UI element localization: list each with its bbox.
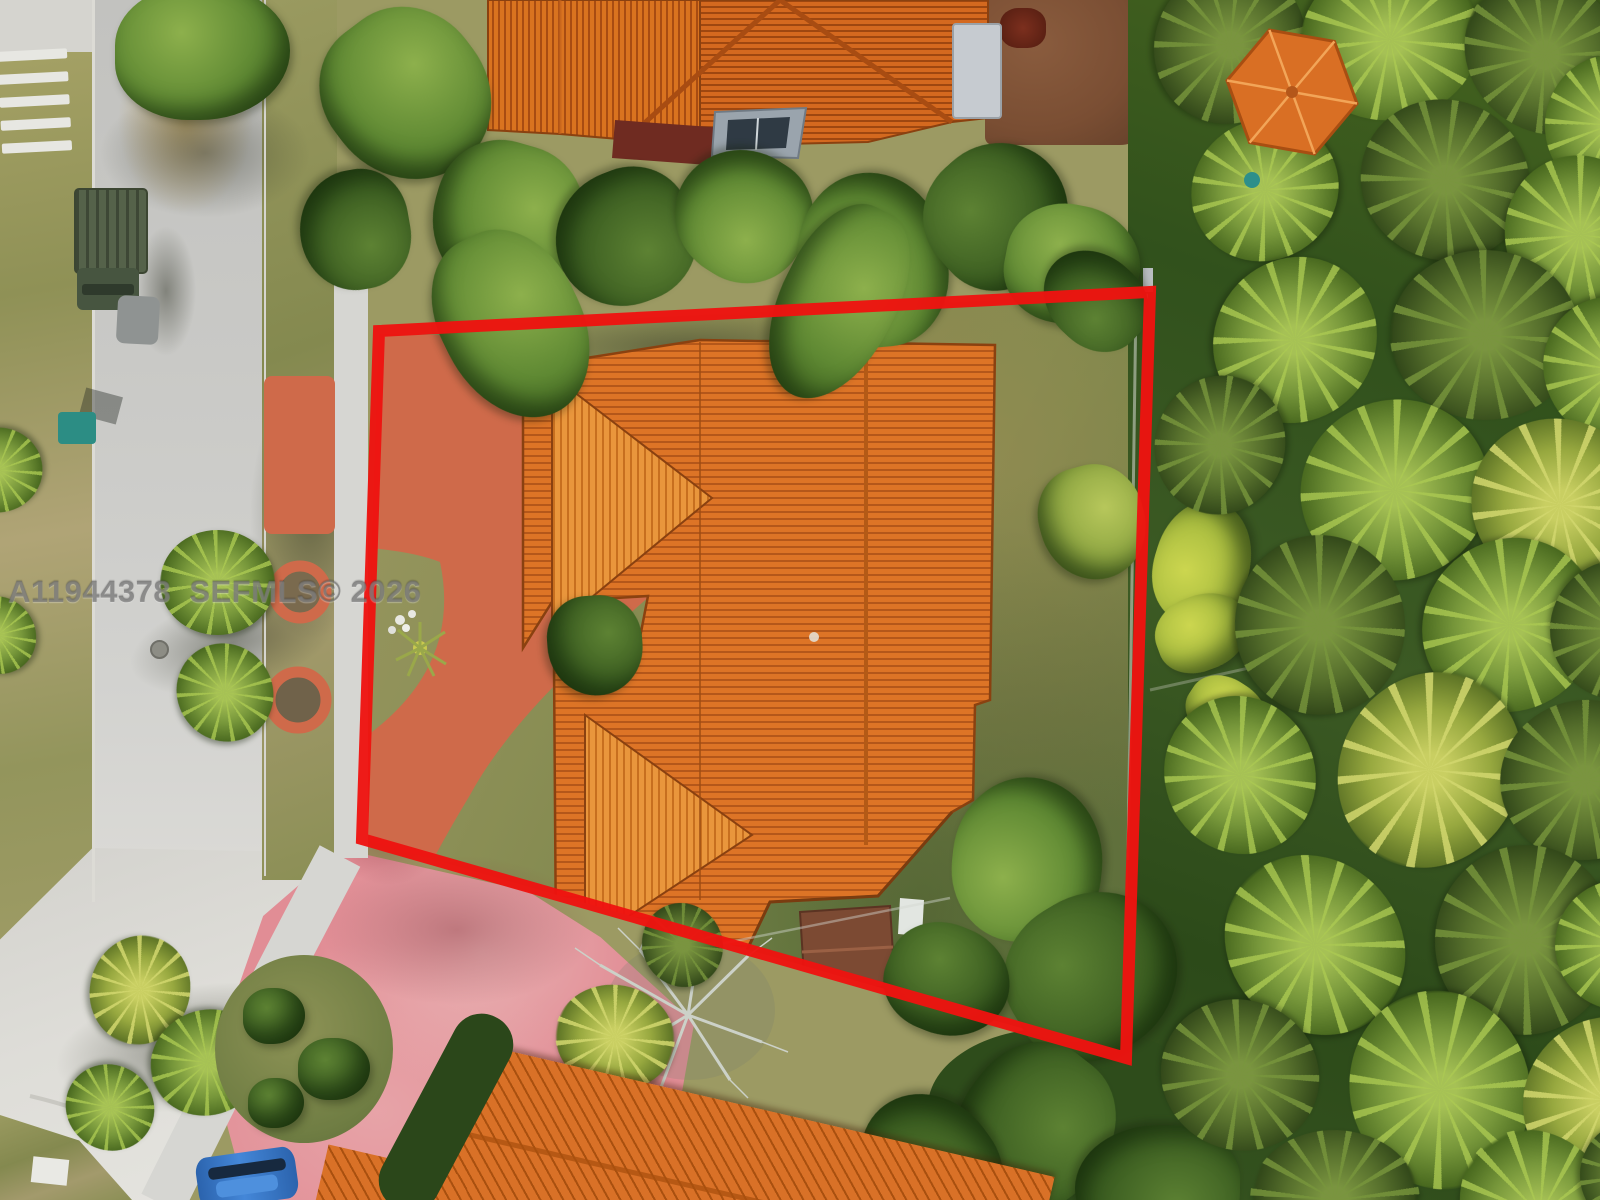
mls-watermark: A11944378 SEFMLS© 2026: [8, 574, 421, 610]
aerial-photo: A11944378 SEFMLS© 2026: [0, 0, 1600, 1200]
property-boundary-outline: [362, 292, 1150, 1058]
